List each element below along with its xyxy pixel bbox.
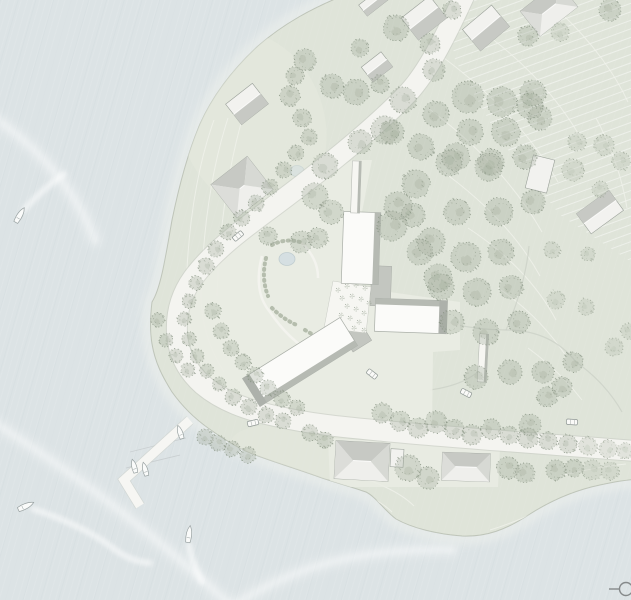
- courtyard-plant-center: [360, 298, 361, 299]
- complex-wing: [374, 298, 447, 333]
- building-hip: [442, 452, 491, 482]
- site-plan-svg: [0, 0, 631, 600]
- complex-wing: [341, 211, 380, 284]
- courtyard-plant-center: [349, 317, 350, 318]
- courtyard-plant-center: [358, 321, 359, 322]
- courtyard-plant-center: [363, 329, 364, 330]
- pond: [279, 253, 295, 266]
- tree: [417, 467, 439, 489]
- tree: [247, 367, 263, 383]
- courtyard-plant-center: [363, 312, 364, 313]
- courtyard-plant-center: [340, 314, 341, 315]
- courtyard-plant-center: [355, 284, 356, 285]
- courtyard-plant-center: [351, 295, 352, 296]
- car: [566, 419, 577, 425]
- courtyard-plant-center: [364, 287, 365, 288]
- linear-wall: [351, 161, 362, 213]
- courtyard-plant-center: [341, 297, 342, 298]
- building-hip: [334, 441, 390, 482]
- courtyard-plant-center: [353, 327, 354, 328]
- courtyard-plant-center: [346, 305, 347, 306]
- site-plan-canvas: [0, 0, 631, 600]
- courtyard-plant-center: [355, 308, 356, 309]
- courtyard-plant-center: [346, 285, 347, 286]
- courtyard-plant-center: [368, 302, 369, 303]
- courtyard-plant-center: [337, 289, 338, 290]
